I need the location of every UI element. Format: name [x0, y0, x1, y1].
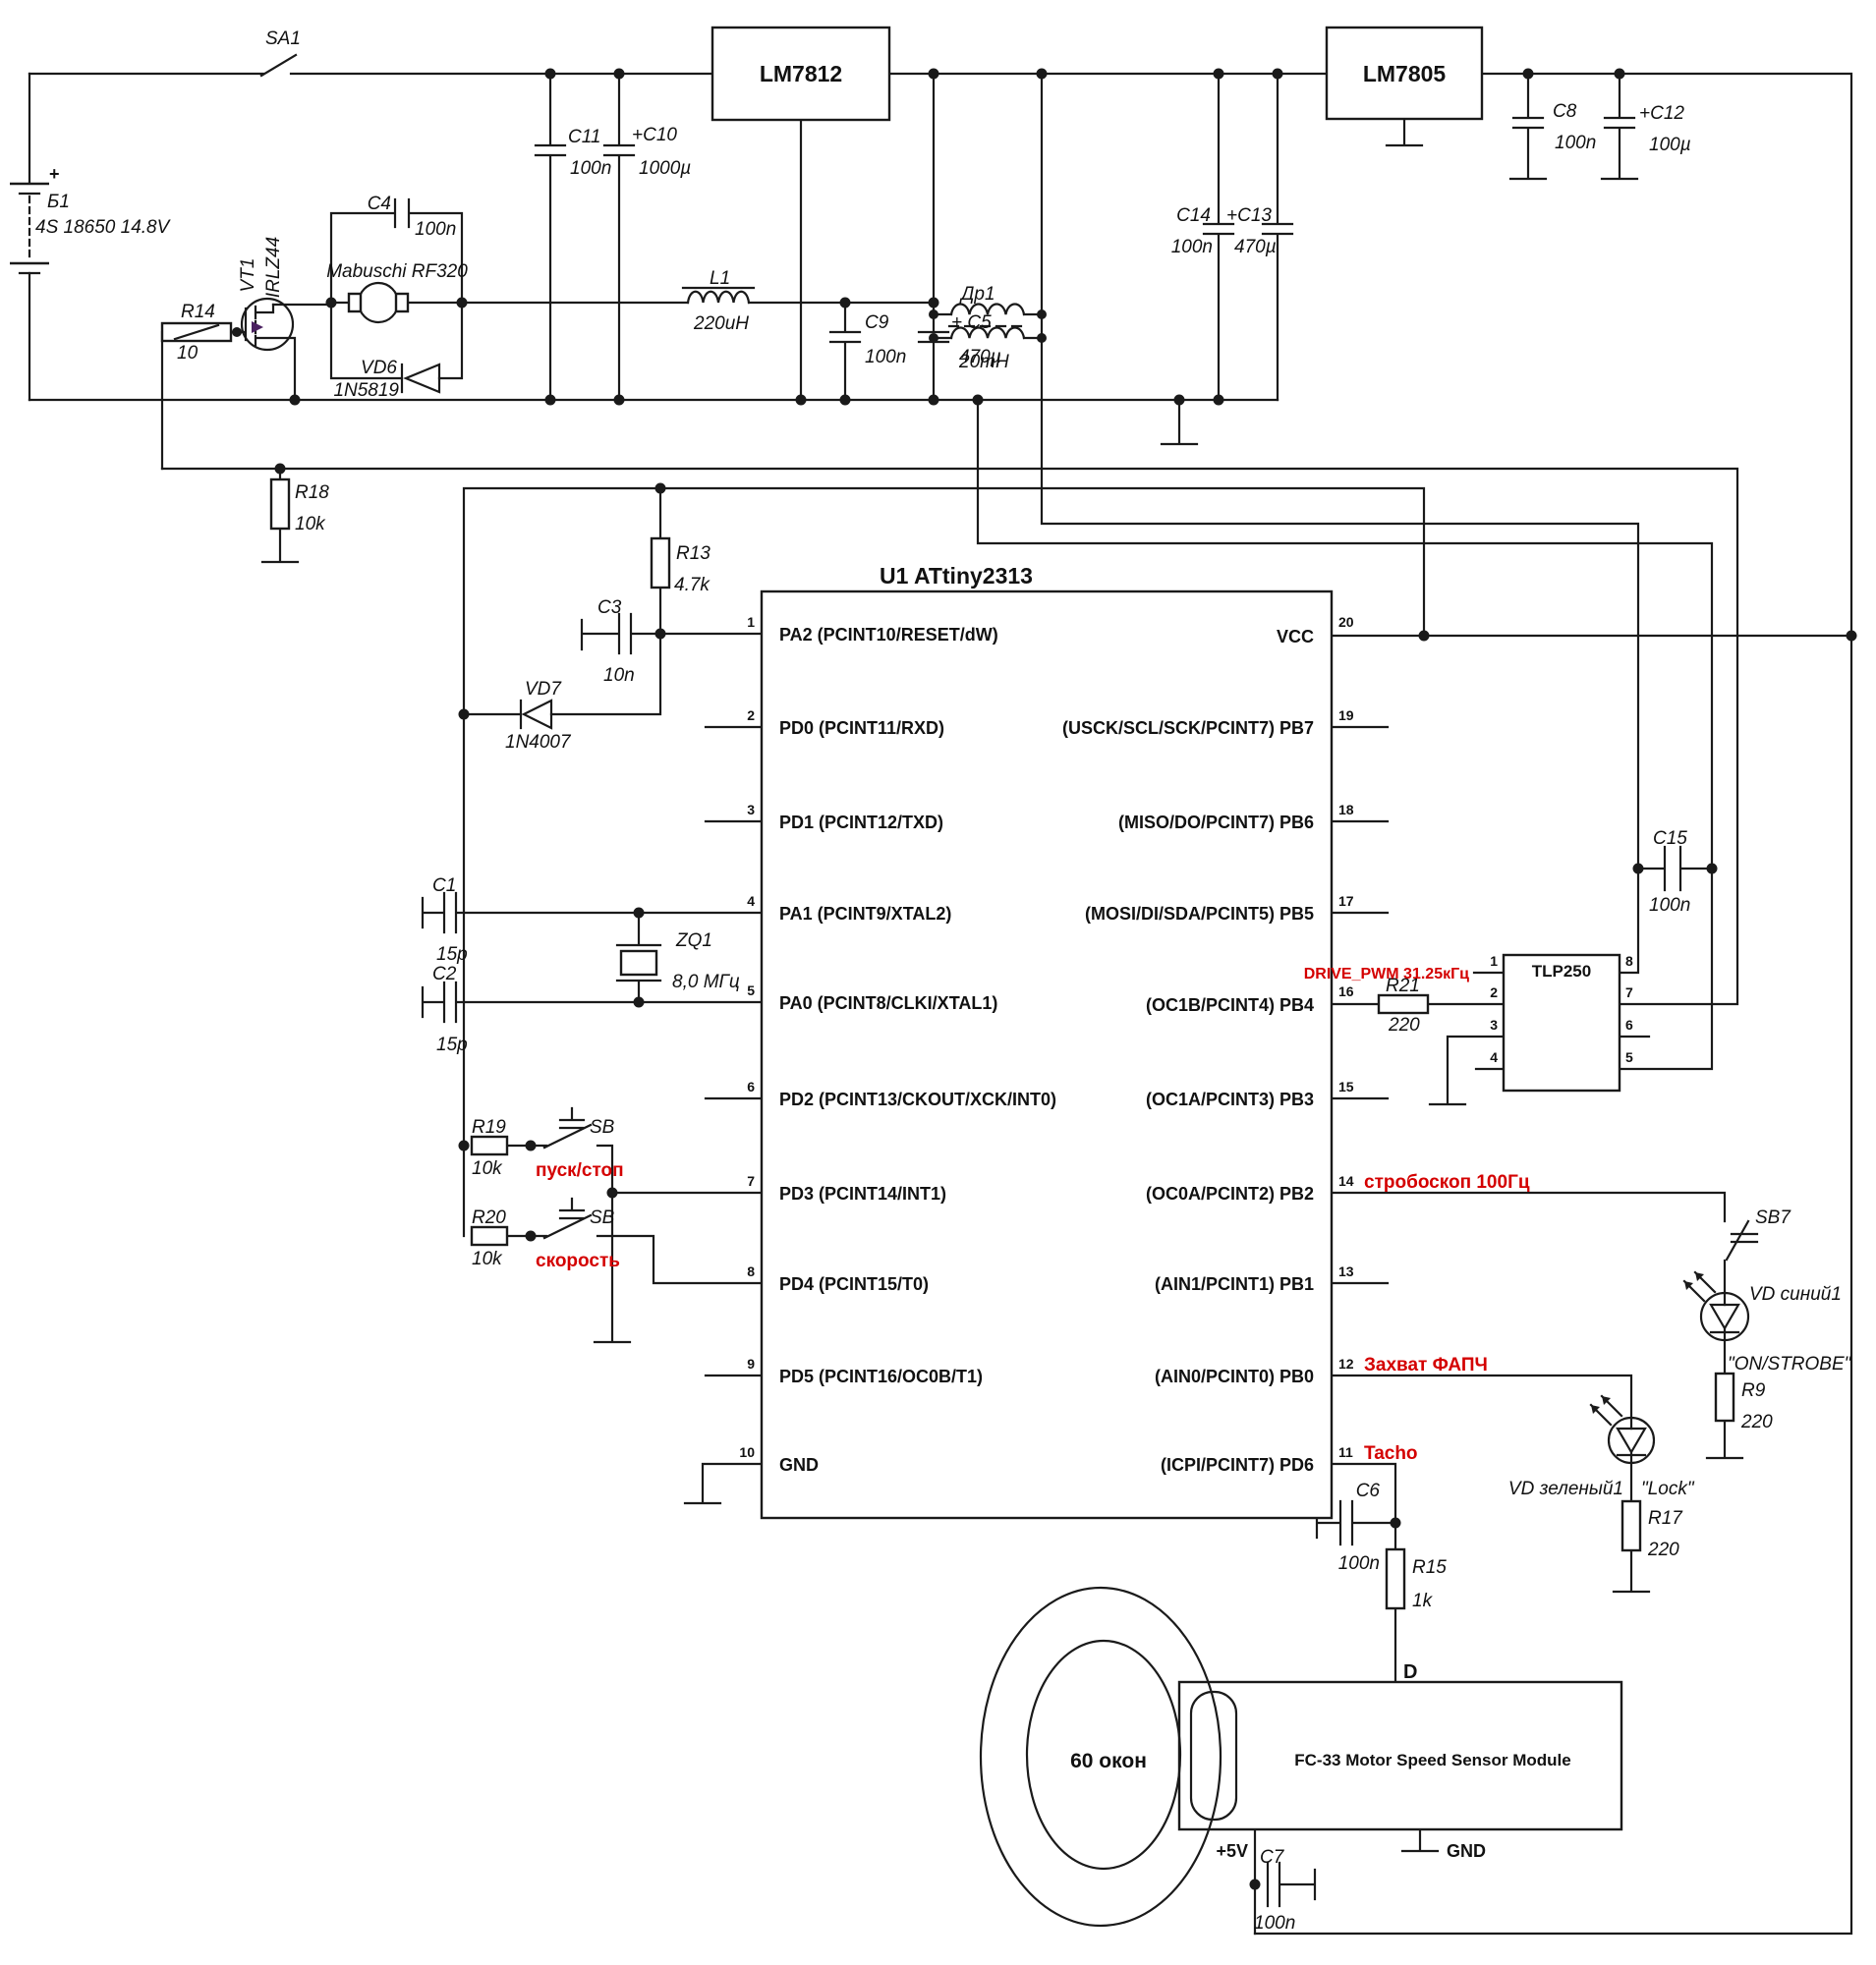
c4-val: 100n	[415, 219, 456, 240]
c1-ref: C1	[432, 875, 456, 896]
net-tacho: Tacho	[1364, 1443, 1418, 1464]
pin-num-5: 5	[747, 982, 755, 998]
tlp250-title: TLP250	[1532, 962, 1591, 981]
zq1-val: 8,0 МГц	[672, 972, 740, 992]
vt1-part: IRLZ44	[263, 237, 284, 298]
r15-ref: R15	[1412, 1557, 1447, 1578]
fc33-pin-5v: +5V	[1216, 1841, 1248, 1861]
tlp-pin-8: 8	[1625, 953, 1633, 969]
mosfet-body-arrow-icon	[252, 321, 263, 333]
dr1-ref: Др1	[959, 284, 995, 305]
sb-start-ref: SB	[590, 1117, 615, 1138]
l1-val: 220uH	[693, 313, 749, 334]
pin-num-2: 2	[747, 707, 755, 723]
pin-num-16: 16	[1338, 983, 1354, 999]
r18-val: 10k	[295, 514, 326, 534]
pin-label-pb1: (AIN1/PCINT1) PB1	[1155, 1274, 1314, 1294]
c6-ref: C6	[1356, 1481, 1381, 1501]
r18-box	[271, 479, 289, 529]
r13-val: 4.7k	[674, 575, 711, 595]
tlp-pin-3: 3	[1490, 1017, 1498, 1033]
pin-label-pd4: PD4 (PCINT15/T0)	[779, 1274, 929, 1294]
r19-val: 10k	[472, 1158, 503, 1179]
pin-num-9: 9	[747, 1356, 755, 1372]
pin-num-3: 3	[747, 802, 755, 817]
c11-val: 100n	[570, 158, 611, 179]
pin-label-pd6: (ICPI/PCINT7) PD6	[1161, 1455, 1314, 1475]
pin-label-pd5: PD5 (PCINT16/OC0B/T1)	[779, 1367, 983, 1386]
c8-ref: C8	[1553, 101, 1577, 122]
l1-ref: L1	[710, 268, 730, 289]
r20-ref: R20	[472, 1207, 506, 1228]
schematic-canvas: SA1 + Б1 4S 18650 14.8V LM7812 LM7805 C1…	[0, 0, 1876, 1965]
led-green-name: VD зеленый1	[1508, 1479, 1623, 1499]
r15-val: 1k	[1412, 1591, 1434, 1611]
r9-box	[1716, 1374, 1734, 1421]
r17-box	[1622, 1501, 1640, 1550]
pin-label-pb6: (MISO/DO/PCINT7) PB6	[1118, 813, 1314, 832]
net-lock: Захват ФАПЧ	[1364, 1355, 1488, 1375]
pin-label-pd1: PD1 (PCINT12/TXD)	[779, 813, 943, 832]
battery-desc: 4S 18650 14.8V	[35, 217, 172, 238]
r15-box	[1387, 1549, 1404, 1608]
zq1-ref: ZQ1	[675, 930, 712, 951]
c4-ref: C4	[368, 194, 391, 214]
fc33-pin-d: D	[1403, 1661, 1417, 1683]
led-blue-caption: "ON/STROBE"	[1728, 1354, 1852, 1375]
vd6-diode-icon	[406, 365, 439, 392]
r18-ref: R18	[295, 482, 329, 503]
pin-label-gnd: GND	[779, 1455, 819, 1475]
c13-ref: +C13	[1226, 205, 1272, 226]
led-blue	[1684, 1272, 1748, 1340]
net-drive-pwm: DRIVE_PWM 31.25кГц	[1304, 966, 1469, 982]
pin-label-pb2: (OC0A/PCINT2) PB2	[1146, 1184, 1314, 1204]
pin-label-pd2: PD2 (PCINT13/CKOUT/XCK/INT0)	[779, 1090, 1056, 1109]
c9-ref: C9	[865, 312, 889, 333]
c12-ref: +C12	[1639, 103, 1684, 124]
r20-val: 10k	[472, 1249, 503, 1269]
r17-ref: R17	[1648, 1508, 1683, 1529]
sb-speed-caption: скорость	[536, 1251, 620, 1271]
r13-ref: R13	[676, 543, 711, 564]
c14-ref: C14	[1176, 205, 1211, 226]
vd7-ref: VD7	[525, 679, 562, 700]
c5-ref: + C5	[951, 312, 992, 333]
r17-val: 220	[1647, 1540, 1679, 1560]
dr1-val: 20mH	[958, 352, 1009, 372]
sa1-label: SA1	[265, 28, 301, 49]
sb-speed-ref: SB	[590, 1207, 615, 1228]
pin-num-20: 20	[1338, 614, 1354, 630]
zq1-crystal-box	[621, 951, 656, 975]
pin-label-pa0: PA0 (PCINT8/CLKI/XTAL1)	[779, 993, 997, 1013]
r21-val: 220	[1388, 1015, 1420, 1036]
r14-val: 10	[177, 343, 199, 364]
fc33-pin-gnd: GND	[1447, 1841, 1486, 1861]
vd6-val: 1N5819	[333, 380, 399, 401]
pin-label-pb7: (USCK/SCL/SCK/PCINT7) PB7	[1062, 718, 1314, 738]
c7-val: 100n	[1254, 1913, 1295, 1934]
pin-num-18: 18	[1338, 802, 1354, 817]
pin-num-13: 13	[1338, 1263, 1354, 1279]
pin-num-8: 8	[747, 1263, 755, 1279]
c14-val: 100n	[1171, 237, 1213, 257]
r21-box	[1379, 995, 1428, 1013]
c6-val: 100n	[1338, 1553, 1380, 1574]
pin-num-6: 6	[747, 1079, 755, 1095]
sb-start-caption: пуск/стоп	[536, 1160, 624, 1181]
c2-val: 15p	[436, 1035, 468, 1055]
pin-num-7: 7	[747, 1173, 755, 1189]
pin-label-pb4: (OC1B/PCINT4) PB4	[1146, 995, 1314, 1015]
vt1-ref: VT1	[238, 258, 258, 293]
tlp-pin-6: 6	[1625, 1017, 1633, 1033]
tlp-pin-4: 4	[1490, 1049, 1498, 1065]
c15-val: 100n	[1649, 895, 1690, 916]
c3-val: 10n	[603, 665, 635, 686]
r9-val: 220	[1740, 1412, 1773, 1432]
pin-num-14: 14	[1338, 1173, 1354, 1189]
sb7-label: SB7	[1755, 1207, 1791, 1228]
pin-label-pd3: PD3 (PCINT14/INT1)	[779, 1184, 946, 1204]
net-strobe: стробоскоп 100Гц	[1364, 1172, 1530, 1193]
pin-label-pa1: PA1 (PCINT9/XTAL2)	[779, 904, 951, 924]
mcu-title: U1 ATtiny2313	[880, 563, 1033, 589]
lm7805-label: LM7805	[1363, 61, 1447, 86]
motor-name: Mabuschi RF320	[326, 261, 468, 282]
motor-symbol	[349, 283, 408, 322]
encoder-caption: 60 окон	[1070, 1750, 1147, 1772]
tlp-pin-2: 2	[1490, 984, 1498, 1000]
r14-ref: R14	[181, 302, 215, 322]
vd7-diode-icon	[524, 701, 551, 728]
r19-ref: R19	[472, 1117, 506, 1138]
pin-num-4: 4	[747, 893, 755, 909]
pin-label-pa2: PA2 (PCINT10/RESET/dW)	[779, 625, 998, 645]
tlp-pin-5: 5	[1625, 1049, 1633, 1065]
lm7812-label: LM7812	[760, 61, 842, 86]
c2-ref: C2	[432, 964, 457, 984]
pin-label-pb5: (MOSI/DI/SDA/PCINT5) PB5	[1085, 904, 1314, 924]
pin-num-17: 17	[1338, 893, 1354, 909]
led-blue-name: VD синий1	[1749, 1284, 1842, 1305]
c1-val: 15p	[436, 944, 468, 965]
r20-box	[472, 1227, 507, 1245]
c3-ref: C3	[597, 597, 622, 618]
pin-label-pd0: PD0 (PCINT11/RXD)	[779, 718, 944, 738]
pin-num-12: 12	[1338, 1356, 1354, 1372]
pin-num-11: 11	[1338, 1444, 1353, 1460]
c8-val: 100n	[1555, 133, 1596, 153]
schematic-page: SA1 + Б1 4S 18650 14.8V LM7812 LM7805 C1…	[0, 0, 1876, 1965]
c9-val: 100n	[865, 347, 906, 367]
r9-ref: R9	[1741, 1380, 1766, 1401]
pin-label-pb3: (OC1A/PCINT3) PB3	[1146, 1090, 1314, 1109]
pin-num-19: 19	[1338, 707, 1354, 723]
c10-ref: +C10	[632, 125, 677, 145]
c7-ref: C7	[1260, 1847, 1285, 1868]
r19-box	[472, 1137, 507, 1154]
mosfet-vt1	[242, 299, 293, 350]
pin-label-pb0: (AIN0/PCINT0) PB0	[1155, 1367, 1314, 1386]
led-green-caption: "Lock"	[1641, 1479, 1695, 1499]
c12-val: 100µ	[1649, 135, 1691, 155]
battery-plus: +	[49, 164, 60, 184]
tlp-pin-1: 1	[1490, 953, 1498, 969]
pin-num-15: 15	[1338, 1079, 1354, 1095]
tlp-pin-7: 7	[1625, 984, 1633, 1000]
fc33-title: FC-33 Motor Speed Sensor Module	[1294, 1751, 1570, 1769]
c11-ref: C11	[568, 127, 600, 147]
c13-val: 470µ	[1234, 237, 1277, 257]
c15-ref: C15	[1653, 828, 1687, 849]
battery-ref: Б1	[47, 192, 70, 212]
pin-num-1: 1	[747, 614, 755, 630]
c10-val: 1000µ	[639, 158, 691, 179]
pin-label-vcc: VCC	[1277, 627, 1314, 646]
pin-num-10: 10	[739, 1444, 755, 1460]
vd6-ref: VD6	[361, 358, 397, 378]
vd7-val: 1N4007	[505, 732, 572, 753]
led-green	[1591, 1396, 1654, 1463]
r13-box	[652, 538, 669, 588]
